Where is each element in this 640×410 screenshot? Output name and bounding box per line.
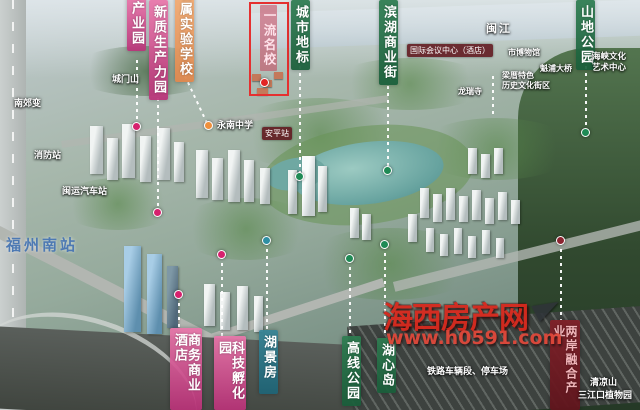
poi-min-river: 闽江 [486,20,512,36]
poi-yongnan-school: 永南中学 [217,118,253,131]
callout-highline-park: 高线公园 [342,336,361,406]
leader-line [349,260,351,336]
poi-chengmen-hill: 城门山 [112,72,139,85]
location-dot [132,122,141,131]
callout-industry-park: 产业园 [127,0,146,51]
location-dot [581,128,590,137]
location-dot [153,208,162,217]
callout-elite-school: 一流名校 [260,5,277,71]
poi-rail-depot: 铁路车辆段、停车场 [427,364,508,377]
poi-longrui-temple: 龙瑞寺 [458,86,482,97]
leader-line [299,66,301,174]
callout-lakeside-commercial-street: 滨湖商业街 [379,0,398,85]
callout-business-hotel: 商务商业酒店 [170,328,202,410]
poi-substation: 南郊变 [14,96,41,109]
poi-strait-culture-art-center: 海峡文化艺术中心 [592,52,626,73]
poi-liangcuo-line2: 历史文化街区 [502,81,550,90]
label-fuzhou-south-station: 福州南站 [6,234,78,255]
location-dot [380,240,389,249]
poi-fire-station: 消防站 [34,148,61,161]
location-dot [556,236,565,245]
location-dot [345,254,354,263]
location-dot [295,172,304,181]
callout-city-landmark: 城市地标 [291,0,310,70]
watermark-url: www.h0591.com [386,327,562,349]
leader-line [266,242,268,330]
location-dot [262,236,271,245]
poi-qingliang-hill: 清凉山 [590,375,617,388]
leader-line [387,86,389,168]
leader-line [221,256,223,336]
poi-art-center-line2: 艺术中心 [592,63,626,73]
poi-city-museum: 市博物馆 [508,47,540,58]
leader-line [157,98,159,210]
leader-line [178,296,180,330]
poi-bus-station: 闽运汽车站 [62,184,107,197]
tag-anping-metro-station: 安平站 [262,127,292,140]
callout-new-productivity-park: 新质生产力园 [149,0,168,100]
callout-tech-incubator-park: 科技孵化园 [214,336,246,410]
highlight-red-box: 一流名校 [249,2,289,96]
poi-botanical-garden: 三江口植物园 [578,388,632,401]
location-dot [204,121,213,130]
poi-kuipu-bridge: 魁浦大桥 [540,63,572,74]
location-dot [217,250,226,259]
poi-liangcuo-historic-block: 梁厝特色历史文化街区 [502,71,550,91]
poi-liangcuo-line1: 梁厝特色 [502,71,534,80]
tag-intl-conference-center: 国际会议中心（酒店） [407,44,493,57]
aerial-masterplan-map: 产业园 新质生产力园 省属实验学校 一流名校 城市地标 滨湖商业街 山地公园 商… [0,0,640,410]
callout-lakeview-homes: 湖景房 [259,330,278,394]
location-dot [383,166,392,175]
callout-provincial-experimental-school: 省属实验学校 [175,0,194,82]
leader-line [492,76,494,118]
leader-line [136,60,138,122]
poi-art-center-line1: 海峡文化 [592,52,626,62]
location-dot [174,290,183,299]
leader-line [585,66,587,130]
